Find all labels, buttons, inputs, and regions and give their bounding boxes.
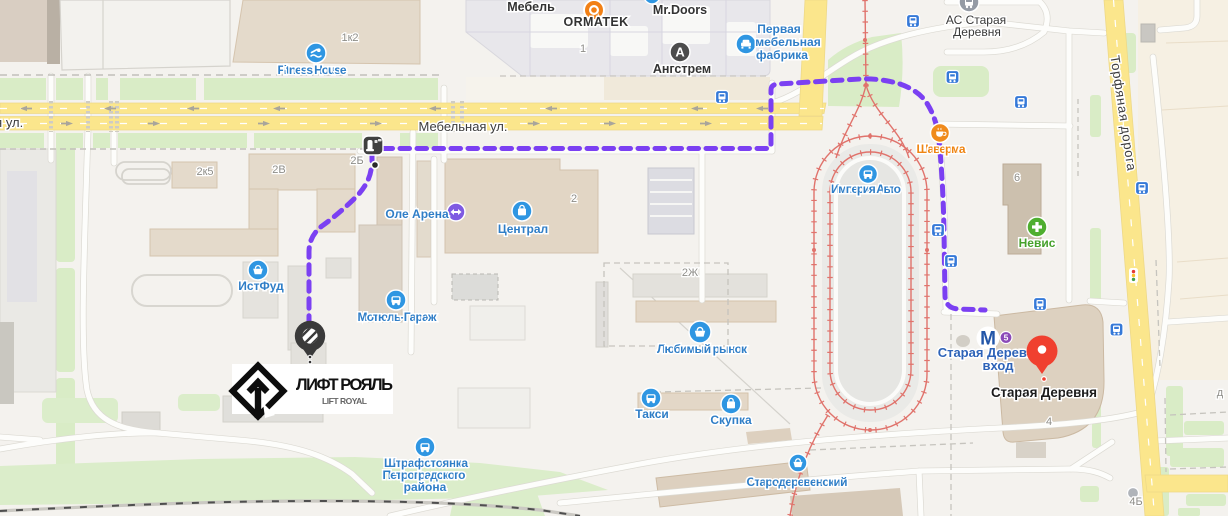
svg-text:1: 1 <box>580 43 586 55</box>
svg-text:LIFT ROYAL: LIFT ROYAL <box>322 396 367 406</box>
svg-text:Мотюль-Гараж: Мотюль-Гараж <box>358 310 437 324</box>
svg-text:Первая: Первая <box>757 22 801 36</box>
svg-text:6: 6 <box>1014 172 1020 184</box>
svg-text:5: 5 <box>1004 333 1009 343</box>
svg-text:Старая Деревня: Старая Деревня <box>991 385 1097 400</box>
svg-text:Скупка: Скупка <box>710 413 752 427</box>
svg-text:Стародеревенский: Стародеревенский <box>747 475 848 489</box>
svg-text:фабрика: фабрика <box>756 48 808 62</box>
svg-text:2Б: 2Б <box>350 155 363 167</box>
svg-text:д: д <box>1217 387 1224 399</box>
svg-text:ЛИФТ РОЯЛЬ: ЛИФТ РОЯЛЬ <box>296 376 393 394</box>
svg-text:Централ: Централ <box>498 222 548 236</box>
svg-text:Империя Авто: Империя Авто <box>831 182 901 196</box>
svg-text:A: A <box>675 45 685 60</box>
svg-text:2В: 2В <box>272 164 285 176</box>
svg-text:Mr.Doors: Mr.Doors <box>653 3 707 17</box>
svg-text:4Б: 4Б <box>1129 496 1142 508</box>
svg-text:Шаверма: Шаверма <box>917 142 966 156</box>
svg-text:Невис: Невис <box>1019 236 1056 250</box>
svg-text:Fitness House: Fitness House <box>278 63 347 77</box>
svg-text:Такси: Такси <box>635 407 669 421</box>
svg-text:Деревня: Деревня <box>953 25 1001 39</box>
svg-text:2: 2 <box>571 193 577 205</box>
svg-text:Мебельная ул.: Мебельная ул. <box>419 119 508 134</box>
svg-text:ная ул.: ная ул. <box>0 115 23 130</box>
svg-text:вход: вход <box>983 358 1015 373</box>
svg-text:мебельная: мебельная <box>755 35 820 49</box>
svg-text:2к5: 2к5 <box>196 166 213 178</box>
svg-text:Мебель: Мебель <box>507 0 555 14</box>
svg-text:Ангстрем: Ангстрем <box>653 62 711 76</box>
svg-text:Оле Арена: Оле Арена <box>385 207 449 221</box>
svg-text:4: 4 <box>1046 416 1052 428</box>
svg-text:2Ж: 2Ж <box>682 267 698 279</box>
svg-text:района: района <box>404 480 447 494</box>
svg-text:ORMATEK: ORMATEK <box>563 15 628 29</box>
svg-text:Любимый рынок: Любимый рынок <box>657 342 748 356</box>
svg-text:ИстФуд: ИстФуд <box>238 279 284 293</box>
svg-text:1к2: 1к2 <box>341 32 358 44</box>
